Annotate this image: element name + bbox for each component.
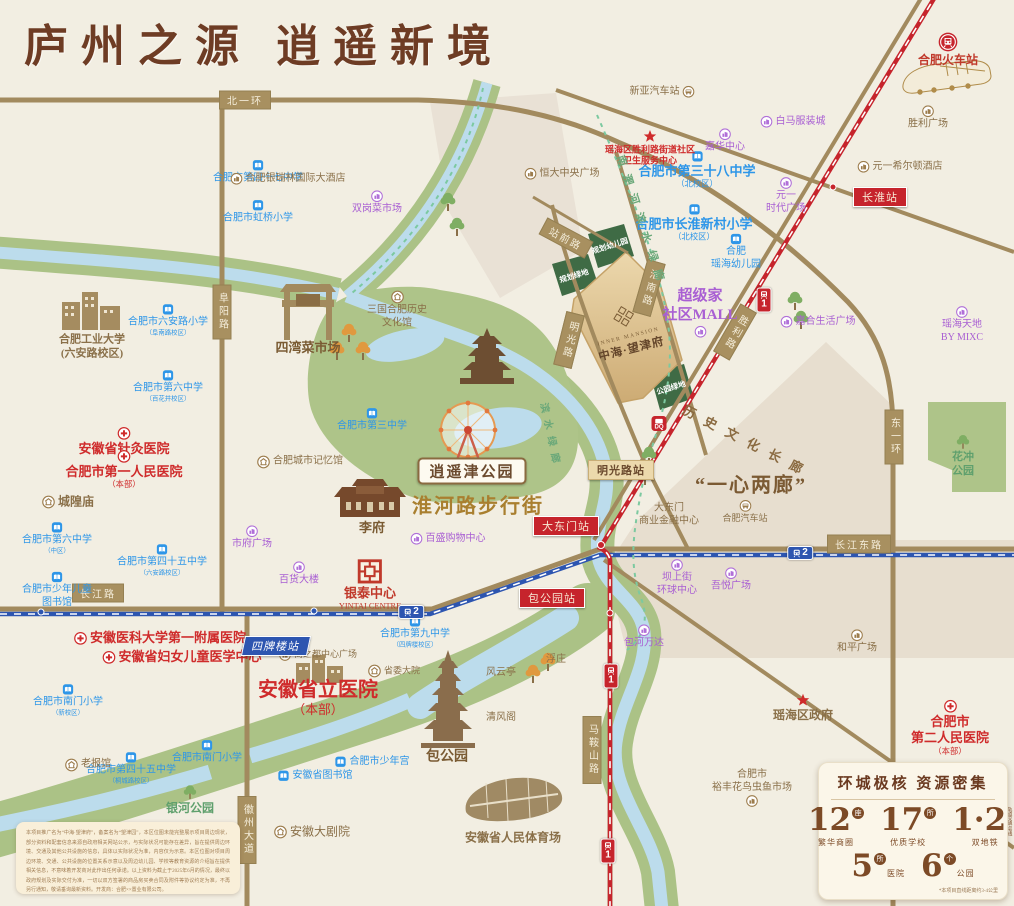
mall-icon [246,525,258,537]
poi-label: 嘉华中心 [705,128,745,154]
temple-icon [65,759,78,772]
poi-text: 安徽省立医院（本部） [258,678,378,718]
stats-panel: 环城极核 资源密集 12座繁华商圈17所优质学校1·2轨道交通1号线轨道交通2号… [818,762,1008,900]
tree-icon [788,292,803,310]
stat-item: 5所医院 [851,851,905,882]
stat-number: 5 [851,851,873,882]
book-icon [366,407,378,419]
cross-icon [117,450,130,463]
poi-label: 合肥市第二人民医院（本部） [911,700,989,756]
metro-station-label: 大东门站 [533,516,599,536]
stats-row-1: 12座繁华商圈17所优质学校1·2轨道交通1号线轨道交通2号线双地铁 [819,805,1007,848]
poi-text: 风云亭 [486,667,516,680]
poi-subtext: YINTAI CENTRE [339,602,401,612]
book-icon [688,203,700,215]
poi-label: 新亚汽车站 [630,86,695,99]
book-icon [335,756,347,768]
poi-label: 安徽省立医院（本部） [258,678,378,718]
poi-label: 合肥市虹桥小学 [223,199,293,225]
metro-line-1-badge: 1 [601,839,616,864]
poi-text: 合肥汽车站 [722,513,767,524]
mall-icon [671,559,683,571]
poi-text: 合肥城市记忆馆 [273,456,343,469]
treeg-icon [182,784,198,800]
poi-text: 浮庄 [546,654,566,667]
poi-text: 安徽大剧院 [290,825,350,840]
poi-label: 胜利广场 [908,105,948,131]
poi-text: 合肥市南门小学 [172,752,242,765]
stat-unit: 个 [944,853,956,865]
project-logo-icon [612,312,637,334]
mall-icon [725,567,737,579]
poi-text: 胜利广场 [908,118,948,131]
poi-text: 花冲公园 [952,451,974,479]
yixin-lianglang-label: “一心两廊” [695,469,807,498]
poi-text: 瑶海天地BY MIXC [941,319,983,344]
poi-text: 安徽省图书馆 [293,770,353,783]
poi-label: 合肥市第三中学 [337,407,407,433]
poi-text: 老报馆 [81,759,111,772]
poi-text: 银河公园 [166,801,214,816]
lmb-icon [858,161,870,173]
poi-label: 浮庄 [546,654,566,667]
disclaimer-text: 本项目推广名为“中海·望津府”，备案名为“望津园”，本区位图未能完整展示项目周边… [26,829,230,896]
poi-text: 合肥瑶海幼儿园 [711,246,761,271]
lmb-icon [746,795,758,807]
poi-label: 双岗菜市场 [352,190,402,216]
book-icon [62,683,74,695]
poi-text: 合肥市南门小学（新校区） [33,696,103,716]
poi-label: 坝上街环球中心 [657,559,697,597]
poi-text: 合肥市六安路小学（阜南路校区） [128,316,208,336]
lmb-icon [851,629,863,641]
poi-text: 百货大楼 [279,574,319,587]
poi-label: 市府广场 [232,525,272,551]
lmb-icon [525,168,537,180]
poi-label: 合肥汽车站 [722,500,767,524]
road-label: 北一环 [219,91,271,110]
stats-footnote: *本项目直线距离约3-4公里 [939,887,998,894]
metro-station-label: 四牌楼站 [243,636,309,656]
road-label: 阜阳路 [213,285,232,340]
poi-text: 百盛购物中心 [426,533,486,546]
poi-text: 瑶海区政府 [773,708,833,723]
mall-icon [293,561,305,573]
book-icon [156,543,168,555]
poi-text: 合肥市少年儿童图书馆 [19,584,95,609]
poi-label: 瑶海区政府 [773,693,833,723]
poi-label: 合肥工业大学(六安路校区) [59,333,125,361]
book-icon [125,751,137,763]
poi-label: 吾悦广场 [711,567,751,593]
poi-label: 合肥市第四十五中学（六安路校区） [117,543,207,576]
poi-text: 大东门商业金融中心 [639,503,699,528]
poi-text: 安徽省人民体育场 [465,831,561,846]
mall-icon [761,116,773,128]
road-label: 东一环 [885,410,904,465]
poi-text: 恒大中央广场 [540,168,600,181]
book-icon [51,521,63,533]
poi-text: 坝上街环球中心 [657,572,697,597]
poi-label: 合肥市南门小学 [172,739,242,765]
metro-line-2-badge: 2 [787,546,813,560]
stat-number: 1·2 [952,805,1006,836]
poi-label: 三国合肥历史文化馆 [367,291,427,330]
poi-text: 省委大院 [384,665,420,676]
poi-text: 合肥市第四十五中学（六安路校区） [117,556,207,576]
poi-label: 风云亭 [486,667,516,680]
cross-icon [102,651,115,664]
poi-text: 安徽省妇女儿童医学中心 [118,649,261,665]
poi-text: 合肥市第一人民医院（本部） [65,464,182,490]
page-title: 庐州之源 逍遥新境 [24,10,504,74]
poi-subtext: （百花井校区） [133,395,203,403]
stats-row-2: 5所医院6个公园 [819,851,1007,882]
poi-text: 合肥工业大学(六安路校区) [59,333,125,361]
poi-label: 合肥市第九中学（四牌楼校区） [380,615,450,648]
road-label: 马鞍山路 [583,716,602,784]
lmb-icon [231,173,243,185]
temple-icon [42,496,55,509]
bus-icon [739,500,751,512]
stat-number: 17 [880,805,923,836]
poi-text: 吾悦广场 [711,580,751,593]
poi-label: 瑶海天地BY MIXC [941,306,983,344]
cross-icon [74,632,87,645]
mall-icon [781,316,793,328]
poi-label: 合肥市少年儿童图书馆 [19,571,95,609]
metro-station-label: 包公园站 [519,588,585,608]
poi-text: 合肥市虹桥小学 [223,212,293,225]
stat-unit: 所 [874,853,886,865]
poi-label: 安徽省人民体育场 [465,831,561,846]
poi-label: 合肥市南门小学（新校区） [33,683,103,716]
huaihe-street-label: 淮河路步行街 [412,490,544,519]
poi-label: 白马服装城 [761,116,826,129]
poi-text: 清风阁 [486,712,516,725]
stat-unit: 座 [852,807,864,819]
poi-text: 合肥市第三十八中学（北校区） [638,163,755,189]
disclaimer-box: 本项目推广名为“中海·望津府”，备案名为“望津园”，本区位图未能完整展示项目周边… [16,822,240,894]
svg-text:DQ: DQ [654,424,663,431]
star-icon [796,693,810,707]
poi-text: 合肥市第二人民医院（本部） [911,714,989,756]
poi-label: 合肥市第一人民医院（本部） [65,450,182,490]
poi-label: 合肥银瑞林国际大酒店 [231,173,346,186]
stat-item: 12座繁华商圈 [808,805,864,848]
stat-label: 繁华商圈 [818,837,854,848]
star-icon [643,129,657,143]
metro-line-1-badge: 1 [757,288,772,313]
stat-item: 17所优质学校 [880,805,936,848]
poi-label: 元一希尔顿酒店 [858,161,943,174]
stat-item: 6个公园 [921,851,975,882]
poi-subtext: （四牌楼校区） [380,641,450,649]
book-icon [162,303,174,315]
poi-subtext: （桐城路校区） [86,777,176,785]
mall-icon [638,624,650,636]
poi-text: 超级家社区MALL [662,287,737,325]
book-icon [201,739,213,751]
xiaoyaojin-park-label: 逍遥津公园 [417,458,526,485]
yintai-icon [357,558,383,584]
poi-label: 恒大中央广场 [525,168,600,181]
mall-icon [719,128,731,140]
poi-text: 新亚汽车站 [630,86,680,99]
poi-label: 安徽省图书馆 [278,770,353,783]
poi-text: 合肥市少年宫 [350,756,410,769]
poi-label: 超级家社区MALL [662,287,737,338]
book-icon [252,199,264,211]
metro-train-icon [792,549,801,558]
poi-text: 合肥火车站 [918,53,978,68]
dq-store-icon: DQ [652,416,667,436]
poi-text: 李府 [359,520,385,536]
road-label: 徽州大道 [238,796,257,864]
stadium-illustration [466,778,563,821]
temple-icon [257,456,270,469]
poi-label: 安徽省妇女儿童医学中心 [102,649,261,665]
poi-subtext: （中区） [22,547,92,555]
poi-text: 元一时代广场 [766,190,806,215]
poi-text: 嘉合生活广场 [796,316,856,329]
poi-label: 银河公园 [166,784,214,816]
book-icon [730,233,742,245]
poi-subtext: （本部） [911,746,989,756]
poi-text: 城隍庙 [58,495,94,510]
stat-unit: 所 [924,807,936,819]
poi-subtext: （阜南路校区） [128,329,208,337]
poi-label: 省委大院 [368,665,420,678]
book-icon [252,159,264,171]
poi-label: 城隍庙 [42,495,94,510]
poi-subtext: （六安路校区） [117,569,207,577]
stat-note: 轨道交通1号线 [1007,807,1012,836]
poi-text: 市府广场 [232,538,272,551]
poi-text: 合肥市裕丰花鸟虫鱼市场 [712,769,792,794]
poi-label: 清风阁 [486,712,516,725]
poi-text: 包河万达 [624,637,664,650]
poi-label: 合肥瑶海幼儿园 [711,233,761,271]
poi-text: 合肥市第六中学（百花井校区） [133,382,203,402]
book-icon [278,770,290,782]
stats-divider [831,799,995,800]
poi-label: 花冲公园 [952,434,974,479]
poi-label: 老报馆 [65,759,111,772]
mall-icon [371,190,383,202]
book-icon [51,571,63,583]
poi-label: 合肥火车站 [918,32,978,68]
poi-text: 包公园 [426,748,468,766]
poi-label: 四湾菜市场 [275,340,340,356]
poi-subtext: （本部） [65,480,182,490]
poi-subtext: （本部） [258,703,378,718]
temple-icon [391,291,404,304]
poi-label: 合肥市第六中学（中区） [22,521,92,554]
poi-text: 白马服装城 [776,116,826,129]
poi-label: 百货大楼 [279,561,319,587]
poi-label: 李府 [359,520,385,536]
cross-icon [117,427,130,440]
poi-label: 嘉合生活广场 [781,316,856,329]
stat-label: 医院 [887,868,905,879]
poi-label: 银泰中心YINTAI CENTRE [339,558,401,611]
stats-title: 环城极核 资源密集 [819,772,1007,793]
poi-label: 元一时代广场 [766,177,806,215]
poi-label: 包河万达 [624,624,664,650]
poi-label: 安徽医科大学第一附属医院 [74,630,246,646]
poi-label: 包公园 [426,748,468,766]
poi-label: 安徽大剧院 [274,825,350,840]
poi-label: 百盛购物中心 [411,533,486,546]
poi-text: 银泰中心YINTAI CENTRE [339,585,401,611]
poi-label: 合肥市六安路小学（阜南路校区） [128,303,208,336]
metro-station-label: 明光路站 [588,460,654,480]
poi-label: 大东门商业金融中心 [639,503,699,528]
poi-subtext: （北校区） [638,180,755,190]
stat-item: 1·2轨道交通1号线轨道交通2号线双地铁 [952,805,1014,848]
map-canvas: 庐州之源 逍遥新境 合肥市第四十七中学合肥市虹桥小学合肥市六安路小学（阜南路校区… [0,0,1014,906]
mall-icon [956,306,968,318]
poi-label: 合肥市少年宫 [335,756,410,769]
poi-text: 合肥银瑞林国际大酒店 [246,173,346,186]
book-icon [162,369,174,381]
poi-subtext: （新校区） [33,709,103,717]
metro-station-label: 长淮站 [853,187,907,207]
mall-icon [411,533,423,545]
poi-text: 双岗菜市场 [352,203,402,216]
mall-icon [780,177,792,189]
university-buildings [62,292,120,330]
poi-label: 合肥市裕丰花鸟虫鱼市场 [712,769,792,807]
metro-line-1-badge: 1 [604,664,619,689]
poi-text: 和平广场 [837,642,877,655]
stat-label: 公园 [957,868,975,879]
poi-text: 合肥市第六中学（中区） [22,534,92,554]
stat-label: 双地铁 [972,837,999,848]
bus-icon [683,86,695,98]
stat-number: 12 [808,805,851,836]
stat-label: 优质学校 [890,837,926,848]
poi-text: 三国合肥历史文化馆 [367,305,427,330]
poi-text: 安徽医科大学第一附属医院 [90,630,246,646]
metro-line-2-badge: 2 [398,605,424,619]
poi-text: 元一希尔顿酒店 [873,161,943,174]
metro-train-icon [403,608,412,617]
mall-icon [694,325,706,337]
lmb-icon [922,105,934,117]
road-label: 长江东路 [827,535,891,554]
poi-text: 合肥市第三中学 [337,420,407,433]
poi-label: 和平广场 [837,629,877,655]
cross-icon [943,700,956,713]
trainlogo-icon [938,32,958,52]
temple-icon [368,665,381,678]
poi-text: 合肥市第九中学（四牌楼校区） [380,628,450,648]
poi-label: 合肥市第六中学（百花井校区） [133,369,203,402]
treeg-icon [955,434,971,450]
poi-text: 嘉华中心 [705,141,745,154]
poi-label: 合肥城市记忆馆 [257,456,343,469]
temple-icon [274,826,287,839]
poi-text: 四湾菜市场 [275,340,340,356]
stat-number: 6 [921,851,943,882]
